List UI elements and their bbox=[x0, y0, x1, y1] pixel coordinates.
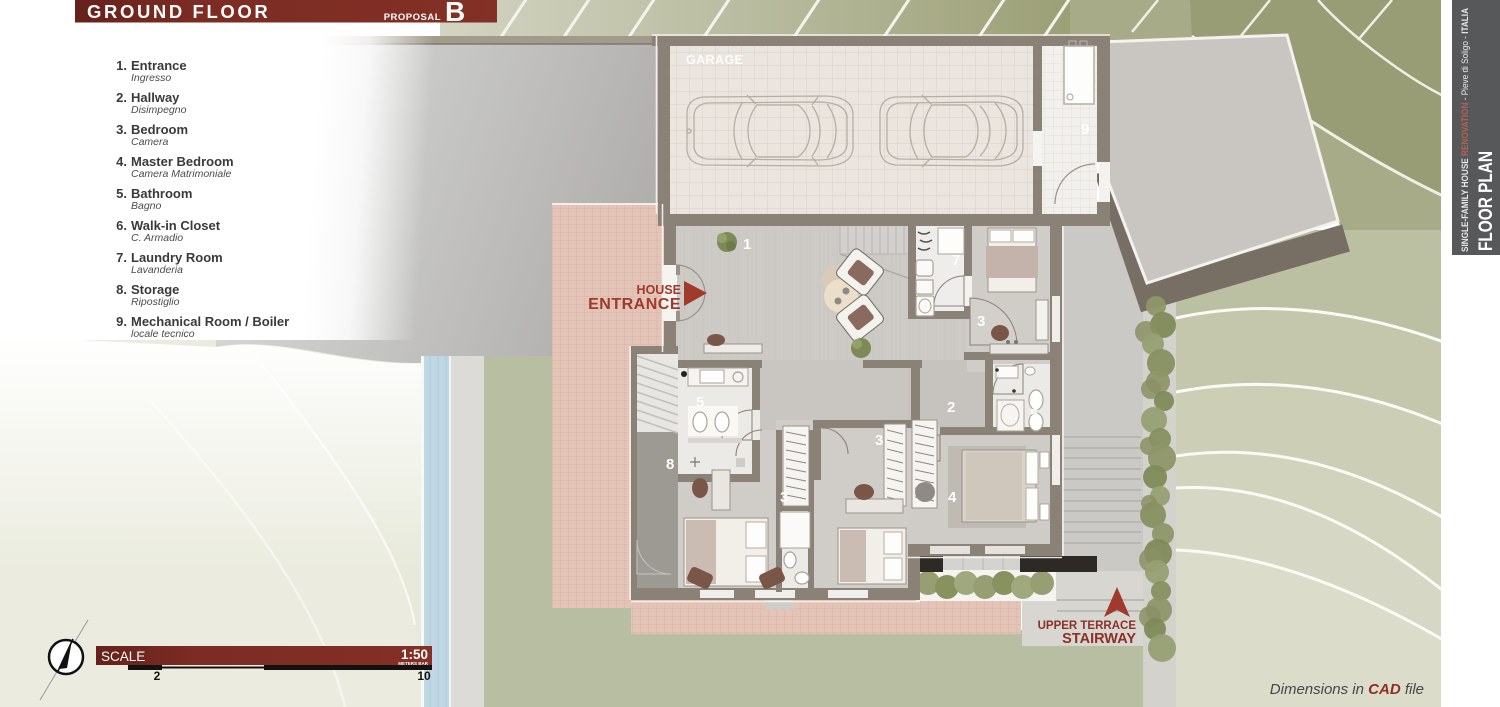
svg-text:Bathroom: Bathroom bbox=[131, 186, 192, 201]
svg-text:HOUSE: HOUSE bbox=[637, 283, 681, 297]
svg-text:Dimensions in CAD file: Dimensions in CAD file bbox=[1270, 681, 1424, 698]
svg-text:Storage: Storage bbox=[131, 282, 179, 297]
svg-text:SCALE: SCALE bbox=[101, 649, 145, 664]
svg-text:Lavanderia: Lavanderia bbox=[131, 264, 183, 276]
svg-text:8.: 8. bbox=[116, 282, 127, 297]
svg-text:ENTRANCE: ENTRANCE bbox=[588, 296, 681, 313]
svg-text:Walk-in Closet: Walk-in Closet bbox=[131, 218, 221, 233]
svg-text:STAIRWAY: STAIRWAY bbox=[1062, 631, 1136, 647]
svg-text:GROUND FLOOR: GROUND FLOOR bbox=[87, 1, 270, 22]
svg-text:Ingresso: Ingresso bbox=[131, 72, 171, 84]
svg-text:3: 3 bbox=[875, 432, 883, 449]
svg-text:PROPOSAL: PROPOSAL bbox=[384, 12, 441, 23]
svg-text:Master Bedroom: Master Bedroom bbox=[131, 154, 234, 169]
svg-text:FLOOR PLAN: FLOOR PLAN bbox=[1476, 151, 1497, 251]
svg-text:Entrance: Entrance bbox=[131, 58, 187, 73]
svg-text:Mechanical Room / Boiler: Mechanical Room / Boiler bbox=[131, 314, 289, 329]
svg-text:SINGLE-FAMILY HOUSE RENOVATION: SINGLE-FAMILY HOUSE RENOVATION - Pieve d… bbox=[1460, 7, 1470, 252]
svg-text:1:50: 1:50 bbox=[401, 647, 428, 662]
svg-text:2.: 2. bbox=[116, 90, 127, 105]
svg-text:2: 2 bbox=[947, 399, 955, 416]
svg-text:Disimpegno: Disimpegno bbox=[131, 104, 187, 116]
svg-text:9: 9 bbox=[1081, 121, 1089, 138]
svg-text:7.: 7. bbox=[116, 250, 127, 265]
svg-text:5: 5 bbox=[1030, 406, 1038, 423]
svg-text:3: 3 bbox=[780, 489, 788, 506]
svg-text:GARAGE: GARAGE bbox=[686, 53, 743, 67]
svg-text:Camera Matrimoniale: Camera Matrimoniale bbox=[131, 168, 232, 180]
svg-text:8: 8 bbox=[666, 456, 674, 473]
svg-text:1: 1 bbox=[743, 236, 751, 253]
svg-text:1.: 1. bbox=[116, 58, 127, 73]
svg-text:7: 7 bbox=[952, 252, 960, 269]
svg-text:B: B bbox=[445, 0, 465, 27]
svg-text:locale tecnico: locale tecnico bbox=[131, 328, 195, 340]
svg-text:5.: 5. bbox=[116, 186, 127, 201]
svg-text:Bagno: Bagno bbox=[131, 200, 162, 212]
svg-text:6.: 6. bbox=[116, 218, 127, 233]
svg-text:C. Armadio: C. Armadio bbox=[131, 232, 183, 244]
svg-text:9.: 9. bbox=[116, 314, 127, 329]
svg-text:3.: 3. bbox=[116, 122, 127, 137]
svg-text:4: 4 bbox=[948, 489, 957, 506]
svg-text:Camera: Camera bbox=[131, 136, 169, 148]
svg-text:Hallway: Hallway bbox=[131, 90, 180, 105]
svg-text:2: 2 bbox=[154, 669, 161, 683]
svg-text:Laundry Room: Laundry Room bbox=[131, 250, 223, 265]
svg-text:4.: 4. bbox=[116, 154, 127, 169]
svg-text:Ripostiglio: Ripostiglio bbox=[131, 296, 180, 308]
svg-text:10: 10 bbox=[417, 669, 431, 683]
svg-text:3: 3 bbox=[977, 313, 985, 330]
svg-text:5: 5 bbox=[696, 394, 704, 411]
svg-text:Bedroom: Bedroom bbox=[131, 122, 188, 137]
